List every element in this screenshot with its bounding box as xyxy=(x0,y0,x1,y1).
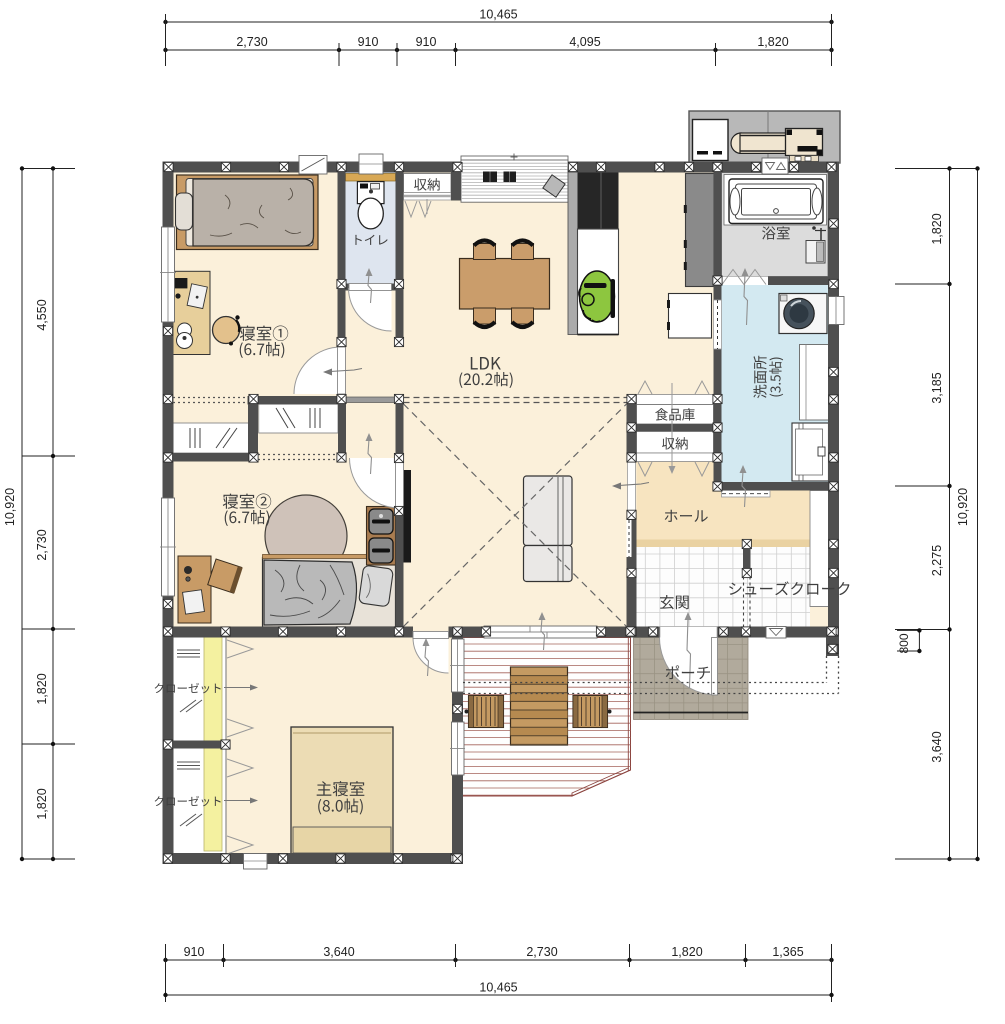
svg-text:2,730: 2,730 xyxy=(35,529,49,560)
svg-text:1,820: 1,820 xyxy=(35,788,49,819)
svg-text:2,730: 2,730 xyxy=(236,35,267,49)
svg-text:4,095: 4,095 xyxy=(569,35,600,49)
svg-text:1,820: 1,820 xyxy=(757,35,788,49)
svg-text:910: 910 xyxy=(358,35,379,49)
svg-text:10,920: 10,920 xyxy=(3,488,17,526)
svg-text:10,920: 10,920 xyxy=(956,488,970,526)
svg-text:800: 800 xyxy=(897,633,911,653)
svg-text:1,820: 1,820 xyxy=(671,945,702,959)
svg-text:3,640: 3,640 xyxy=(930,731,944,762)
svg-text:1,820: 1,820 xyxy=(35,673,49,704)
svg-text:2,730: 2,730 xyxy=(526,945,557,959)
svg-text:2,275: 2,275 xyxy=(930,545,944,576)
svg-text:3,185: 3,185 xyxy=(930,372,944,403)
svg-text:910: 910 xyxy=(416,35,437,49)
svg-text:910: 910 xyxy=(184,945,205,959)
svg-text:1,365: 1,365 xyxy=(772,945,803,959)
svg-text:3,640: 3,640 xyxy=(323,945,354,959)
svg-text:4,550: 4,550 xyxy=(35,299,49,330)
svg-text:10,465: 10,465 xyxy=(479,981,517,995)
svg-text:1,820: 1,820 xyxy=(930,213,944,244)
svg-text:10,465: 10,465 xyxy=(479,8,517,22)
